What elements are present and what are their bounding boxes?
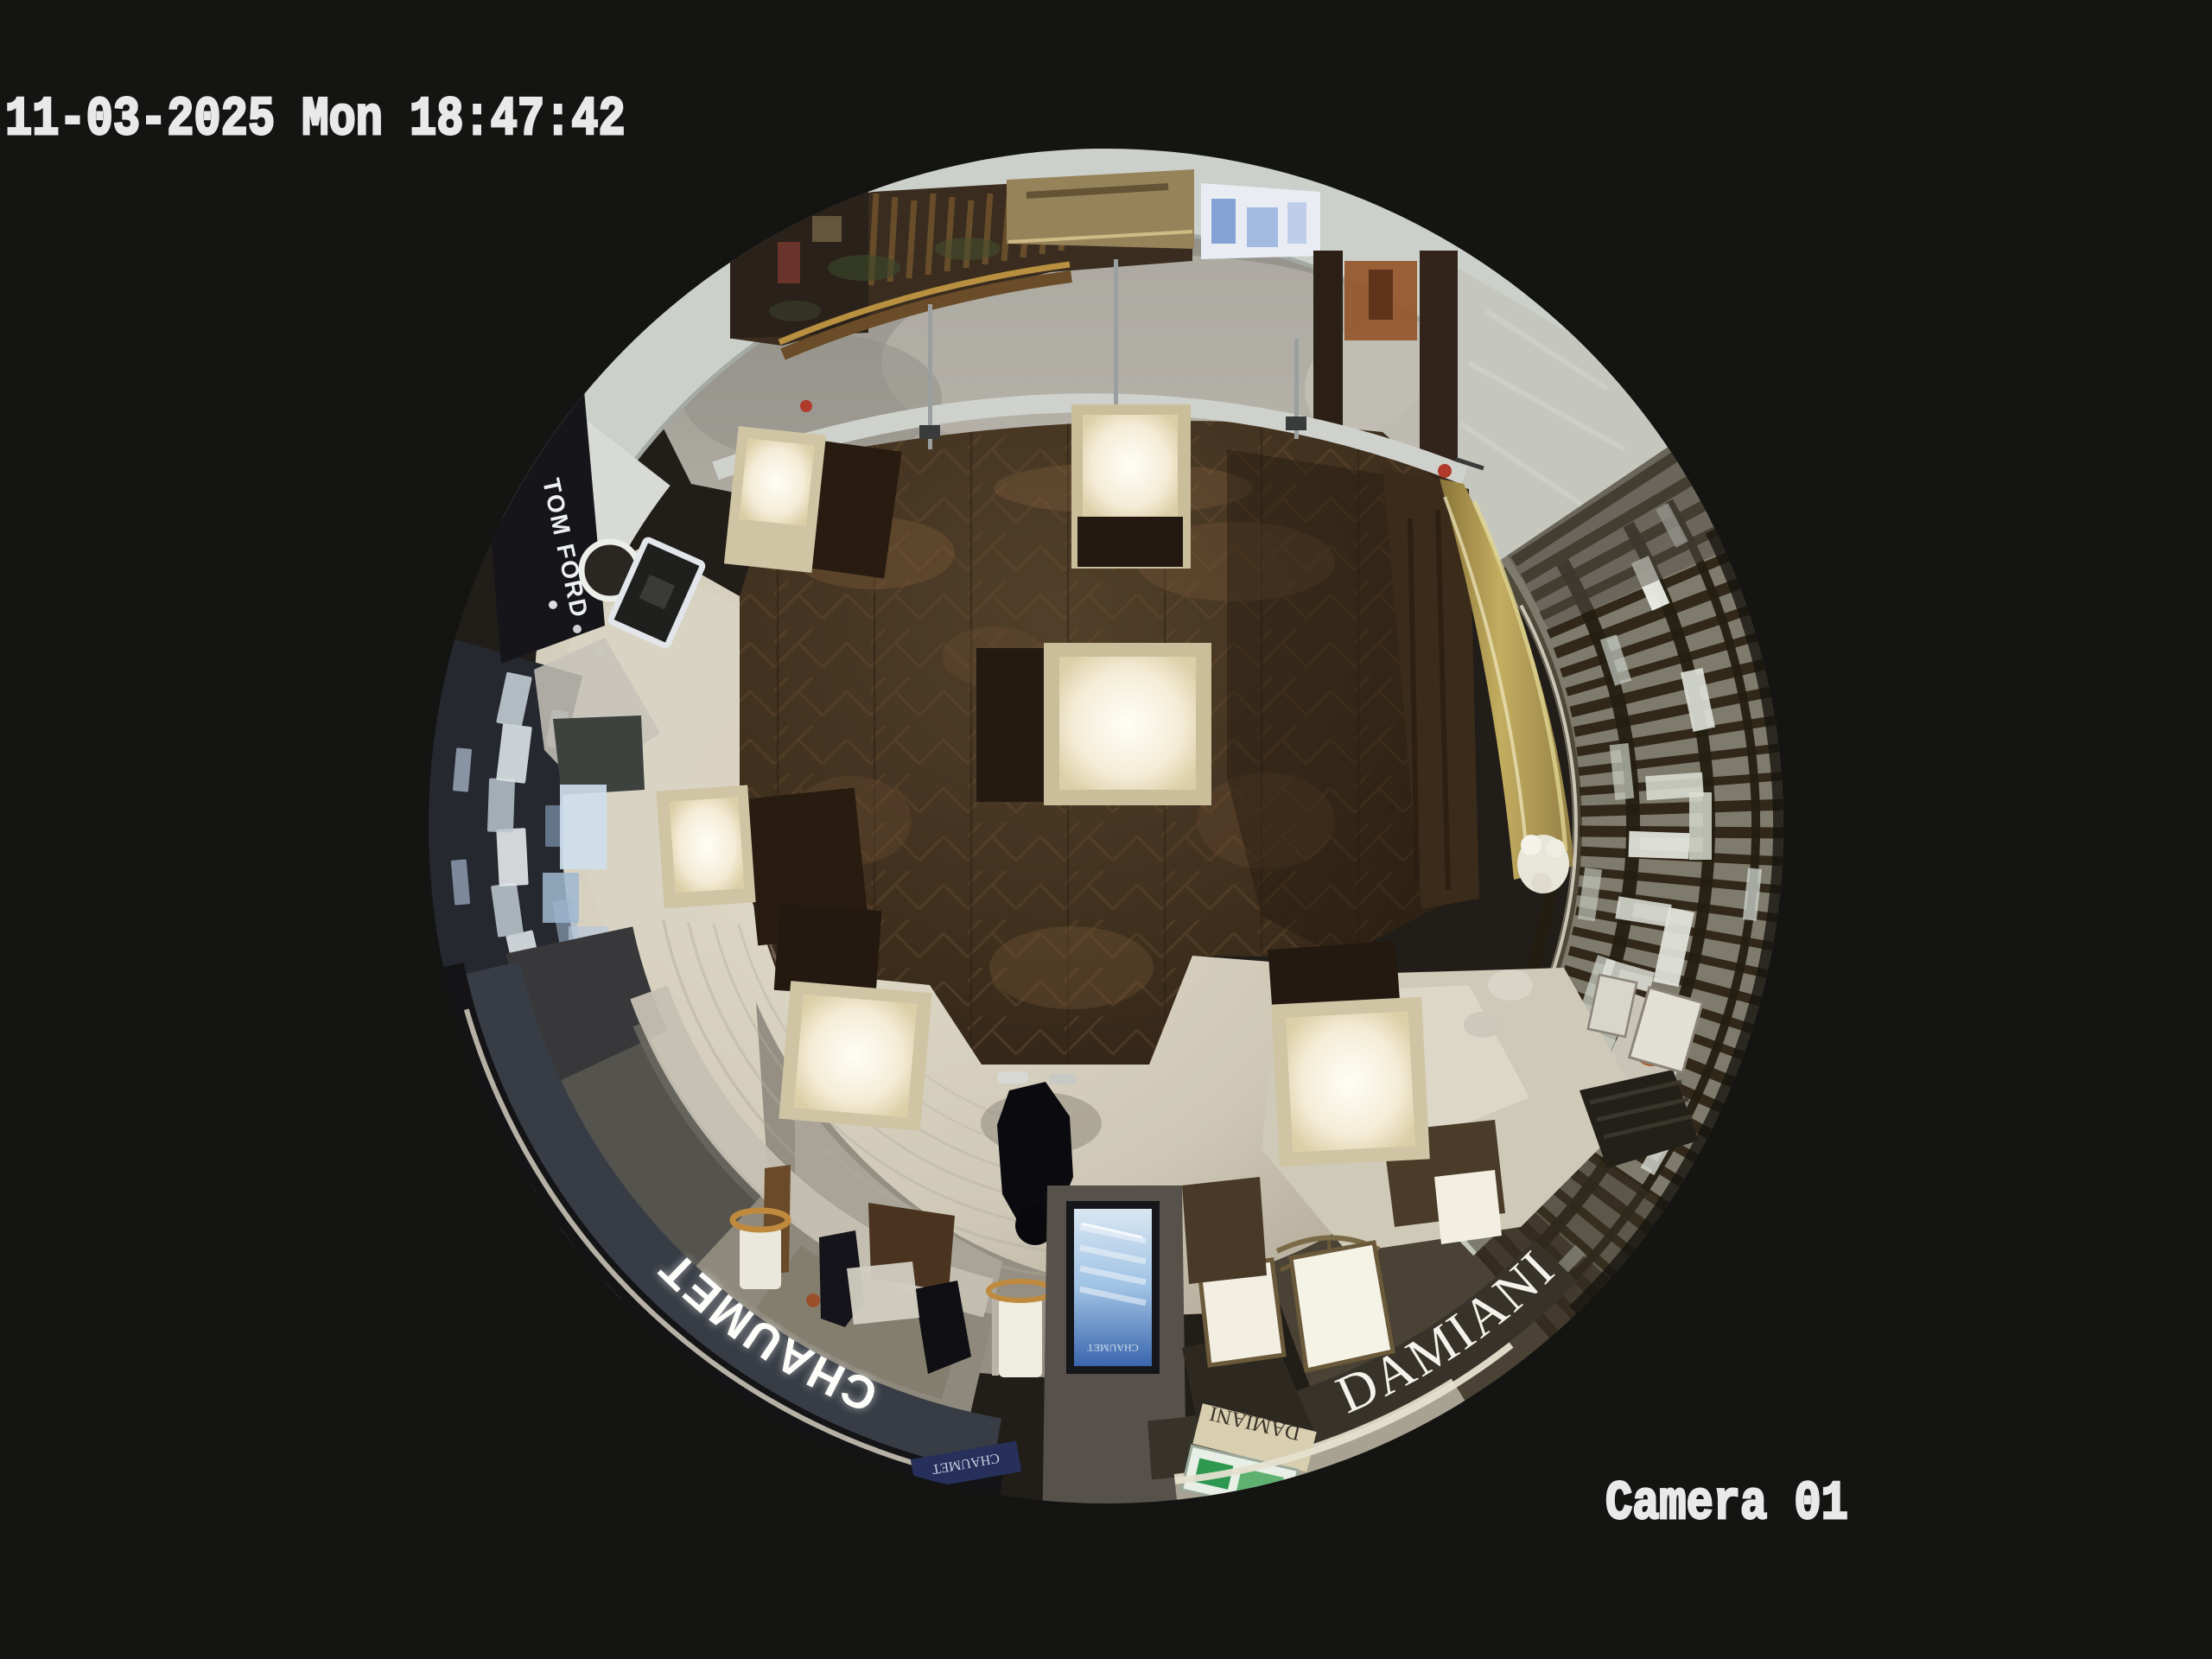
svg-text:CHAUMET: CHAUMET: [1087, 1342, 1139, 1354]
svg-text:Camera 01: Camera 01: [1605, 1474, 1848, 1535]
svg-text:11-03-2025 Mon 18:47:42: 11-03-2025 Mon 18:47:42: [5, 90, 626, 151]
